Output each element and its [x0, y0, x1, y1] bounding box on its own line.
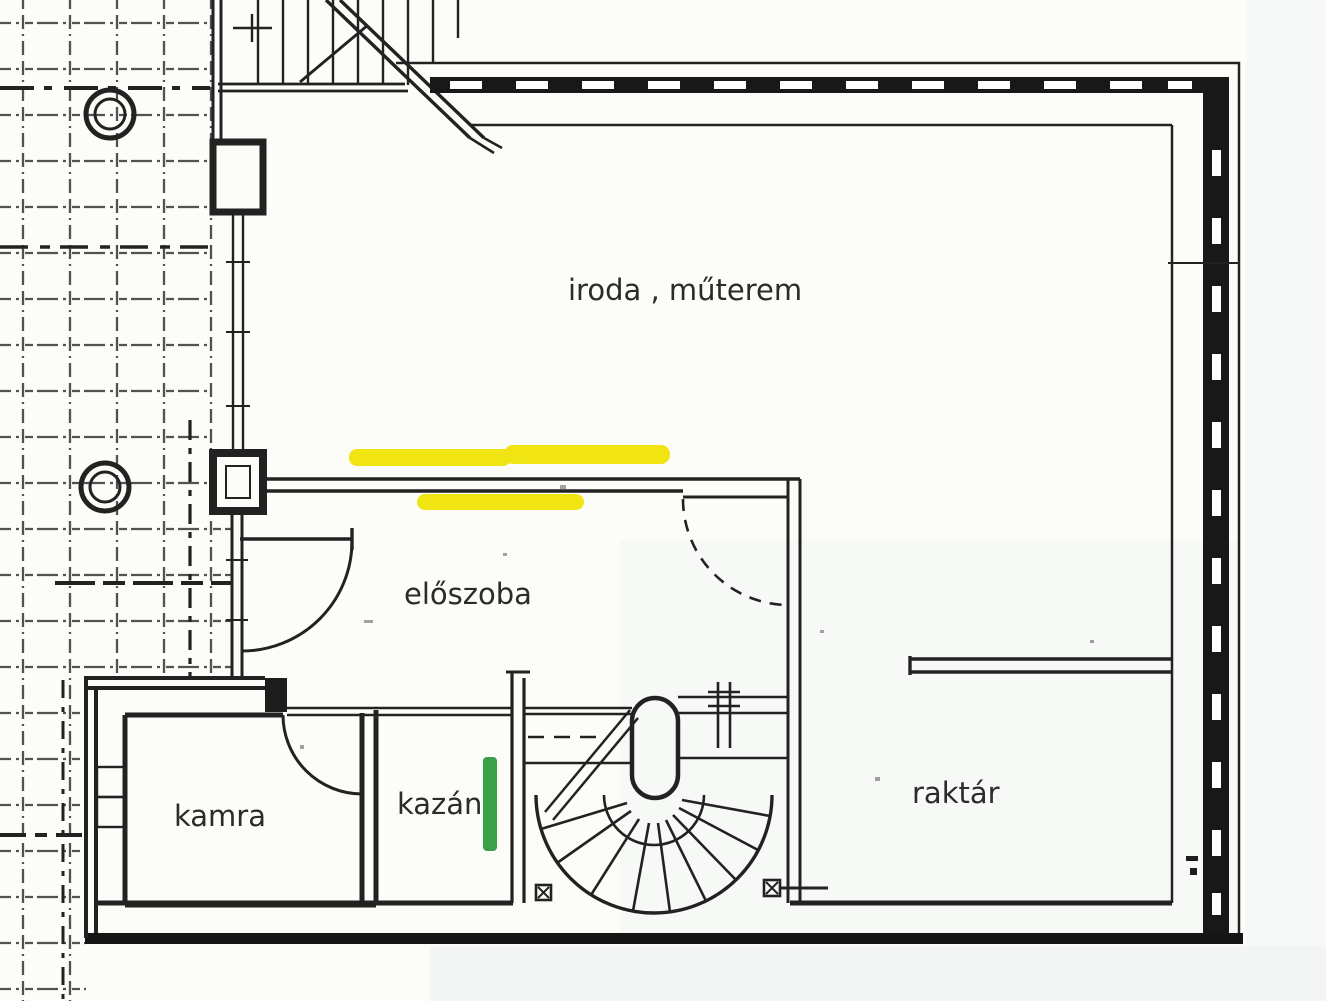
- room-label-raktar: raktár: [912, 776, 1000, 810]
- yellow-highlight-1: [349, 449, 511, 466]
- yellow-highlight-3: [417, 494, 584, 510]
- floor-plan-canvas: iroda , műterem előszoba kamra kazán rak…: [0, 0, 1326, 1001]
- room-label-kamra: kamra: [174, 799, 266, 833]
- floor-plan: iroda , műterem előszoba kamra kazán rak…: [0, 0, 1326, 1001]
- yellow-highlight-2: [504, 445, 670, 464]
- scan-tint: [620, 540, 1240, 940]
- room-label-eloszoba: előszoba: [404, 577, 532, 611]
- bottom-outer-wall: [85, 933, 1243, 944]
- wall-step: [265, 678, 287, 712]
- room-label-kazan: kazán: [397, 787, 482, 821]
- scan-tint-bottom: [430, 946, 1326, 1001]
- room-label-iroda: iroda , műterem: [568, 273, 802, 307]
- right-margin: [1246, 0, 1326, 1001]
- green-highlight: [483, 757, 497, 851]
